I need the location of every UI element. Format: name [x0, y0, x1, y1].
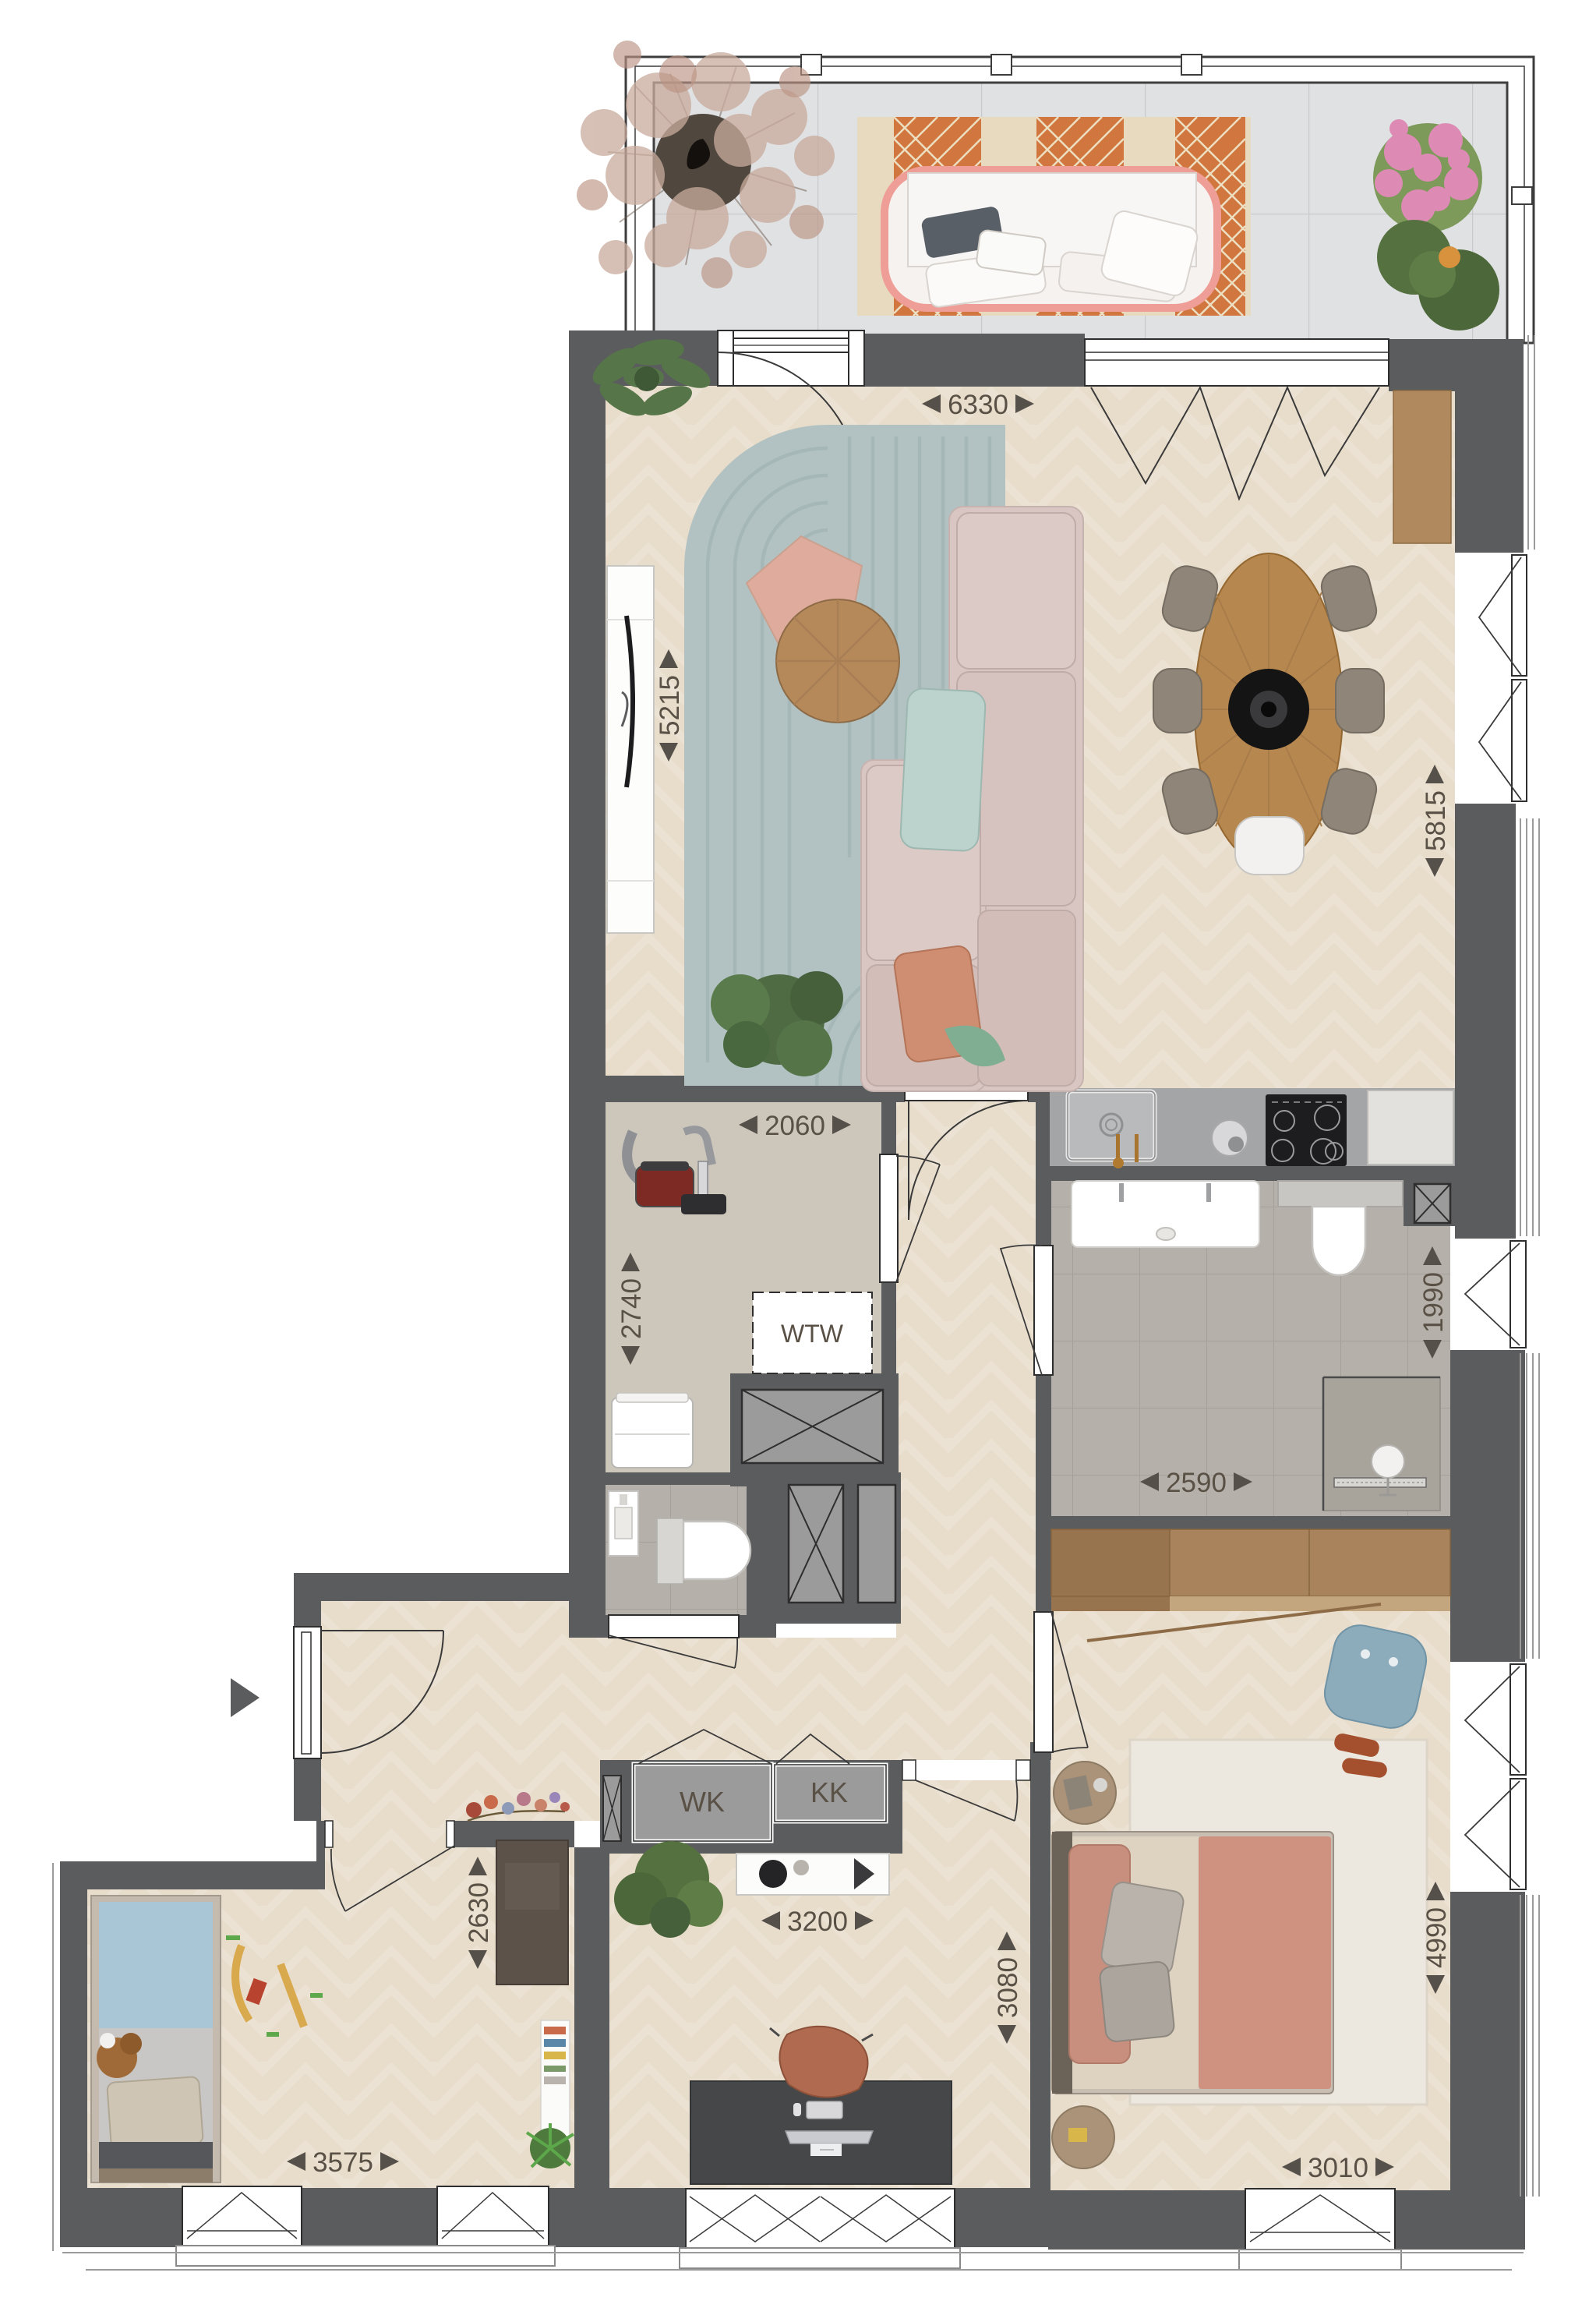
svg-text:2630: 2630 [464, 1882, 494, 1943]
svg-text:WK: WK [680, 1786, 725, 1818]
svg-text:2060: 2060 [764, 1111, 825, 1141]
svg-text:3010: 3010 [1308, 2153, 1368, 2183]
svg-text:3080: 3080 [993, 1957, 1023, 2018]
svg-text:1990: 1990 [1418, 1272, 1449, 1333]
svg-text:5815: 5815 [1421, 790, 1451, 851]
svg-text:KK: KK [810, 1776, 848, 1808]
svg-text:2740: 2740 [616, 1278, 647, 1339]
svg-text:3200: 3200 [787, 1907, 848, 1937]
svg-text:WTW: WTW [781, 1320, 844, 1348]
svg-text:3575: 3575 [312, 2147, 373, 2178]
svg-text:2590: 2590 [1166, 1468, 1227, 1498]
svg-text:6330: 6330 [948, 390, 1008, 420]
svg-text:5215: 5215 [655, 675, 685, 736]
svg-text:4990: 4990 [1421, 1907, 1452, 1968]
